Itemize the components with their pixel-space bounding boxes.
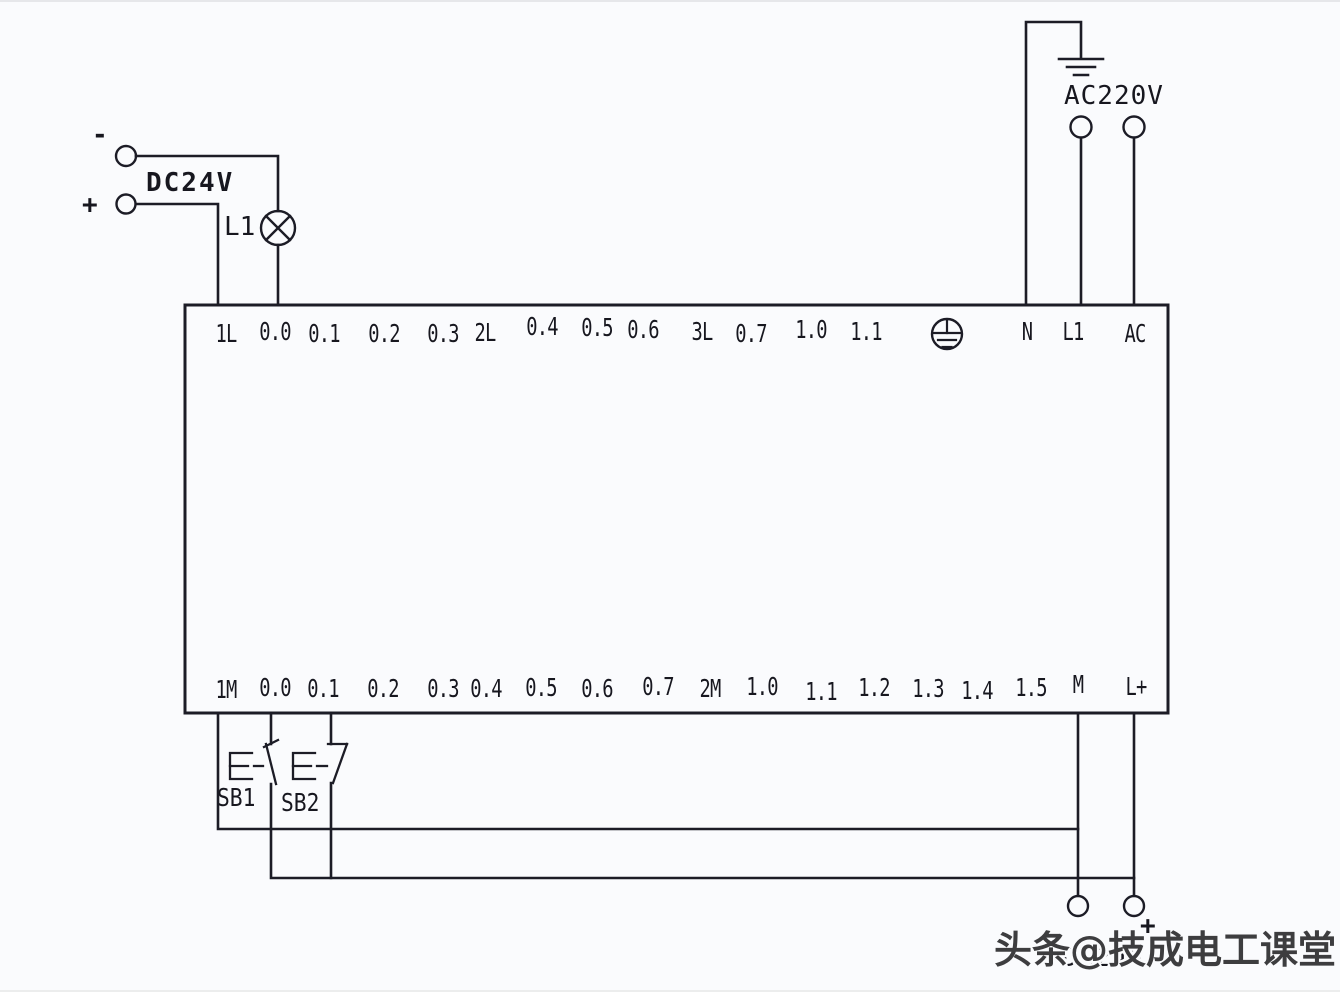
plc-top-terminal-0.6: 0.6 (627, 315, 659, 344)
plc-bottom-terminal-1.2: 1.2 (858, 673, 890, 702)
watermark-text: 头条@技成电工课堂 (994, 919, 1336, 974)
plc-bottom-terminal-1.4: 1.4 (961, 676, 993, 705)
plc-bottom-terminal-0.3: 0.3 (427, 674, 459, 703)
plc-top-terminal-0.5: 0.5 (581, 313, 613, 342)
plc-bottom-terminal-0.4: 0.4 (470, 674, 502, 703)
plc-terminal-labels: 1L0.00.10.20.32L0.40.50.63L0.71.01.1NL1A… (0, 0, 1340, 992)
plc-top-terminal-N: N (1022, 317, 1033, 346)
plc-bottom-terminal-0.6: 0.6 (581, 674, 613, 703)
dc24v-minus-sign: - (92, 120, 108, 150)
plc-top-terminal-2L: 2L (474, 318, 495, 347)
sb2-label: SB2 (281, 788, 319, 817)
plc-bottom-terminal-0.7: 0.7 (642, 672, 674, 701)
plc-bottom-terminal-2M: 2M (699, 674, 720, 703)
plc-top-terminal-1.1: 1.1 (850, 317, 882, 346)
plc-bottom-terminal-L+: L+ (1125, 672, 1146, 701)
dc24v-top-label: DC24V (146, 168, 234, 198)
plc-bottom-terminal-0.5: 0.5 (525, 673, 557, 702)
sb1-label: SB1 (217, 783, 255, 812)
plc-bottom-terminal-1.3: 1.3 (912, 674, 944, 703)
plc-top-terminal-3L: 3L (691, 317, 712, 346)
plc-bottom-terminal-0.0: 0.0 (259, 673, 291, 702)
plc-top-terminal-0.2: 0.2 (368, 319, 400, 348)
plc-bottom-terminal-0.2: 0.2 (367, 674, 399, 703)
dc24v-plus-sign: + (82, 190, 98, 220)
plc-bottom-terminal-1.1: 1.1 (805, 677, 837, 706)
plc-bottom-terminal-0.1: 0.1 (307, 674, 339, 703)
plc-bottom-terminal-1M: 1M (215, 675, 236, 704)
plc-bottom-terminal-1.5: 1.5 (1015, 673, 1047, 702)
plc-top-terminal-0.1: 0.1 (308, 319, 340, 348)
plc-wiring-diagram: 1L0.00.10.20.32L0.40.50.63L0.71.01.1NL1A… (0, 0, 1340, 992)
plc-top-terminal-0.0: 0.0 (259, 317, 291, 346)
plc-top-terminal-AC: AC (1124, 319, 1145, 348)
plc-bottom-terminal-M: M (1073, 670, 1084, 699)
ac220v-label: AC220V (1064, 81, 1164, 111)
plc-top-terminal-0.4: 0.4 (526, 312, 558, 341)
lamp-label: L1 (224, 212, 255, 242)
plc-top-terminal-L1: L1 (1062, 317, 1083, 346)
plc-top-terminal-1L: 1L (215, 319, 236, 348)
plc-top-terminal-0.7: 0.7 (735, 319, 767, 348)
plc-bottom-terminal-1.0: 1.0 (746, 672, 778, 701)
plc-top-terminal-1.0: 1.0 (795, 315, 827, 344)
plc-top-terminal-0.3: 0.3 (427, 319, 459, 348)
dc24v-bottom-plus-sign: + (1140, 911, 1156, 941)
